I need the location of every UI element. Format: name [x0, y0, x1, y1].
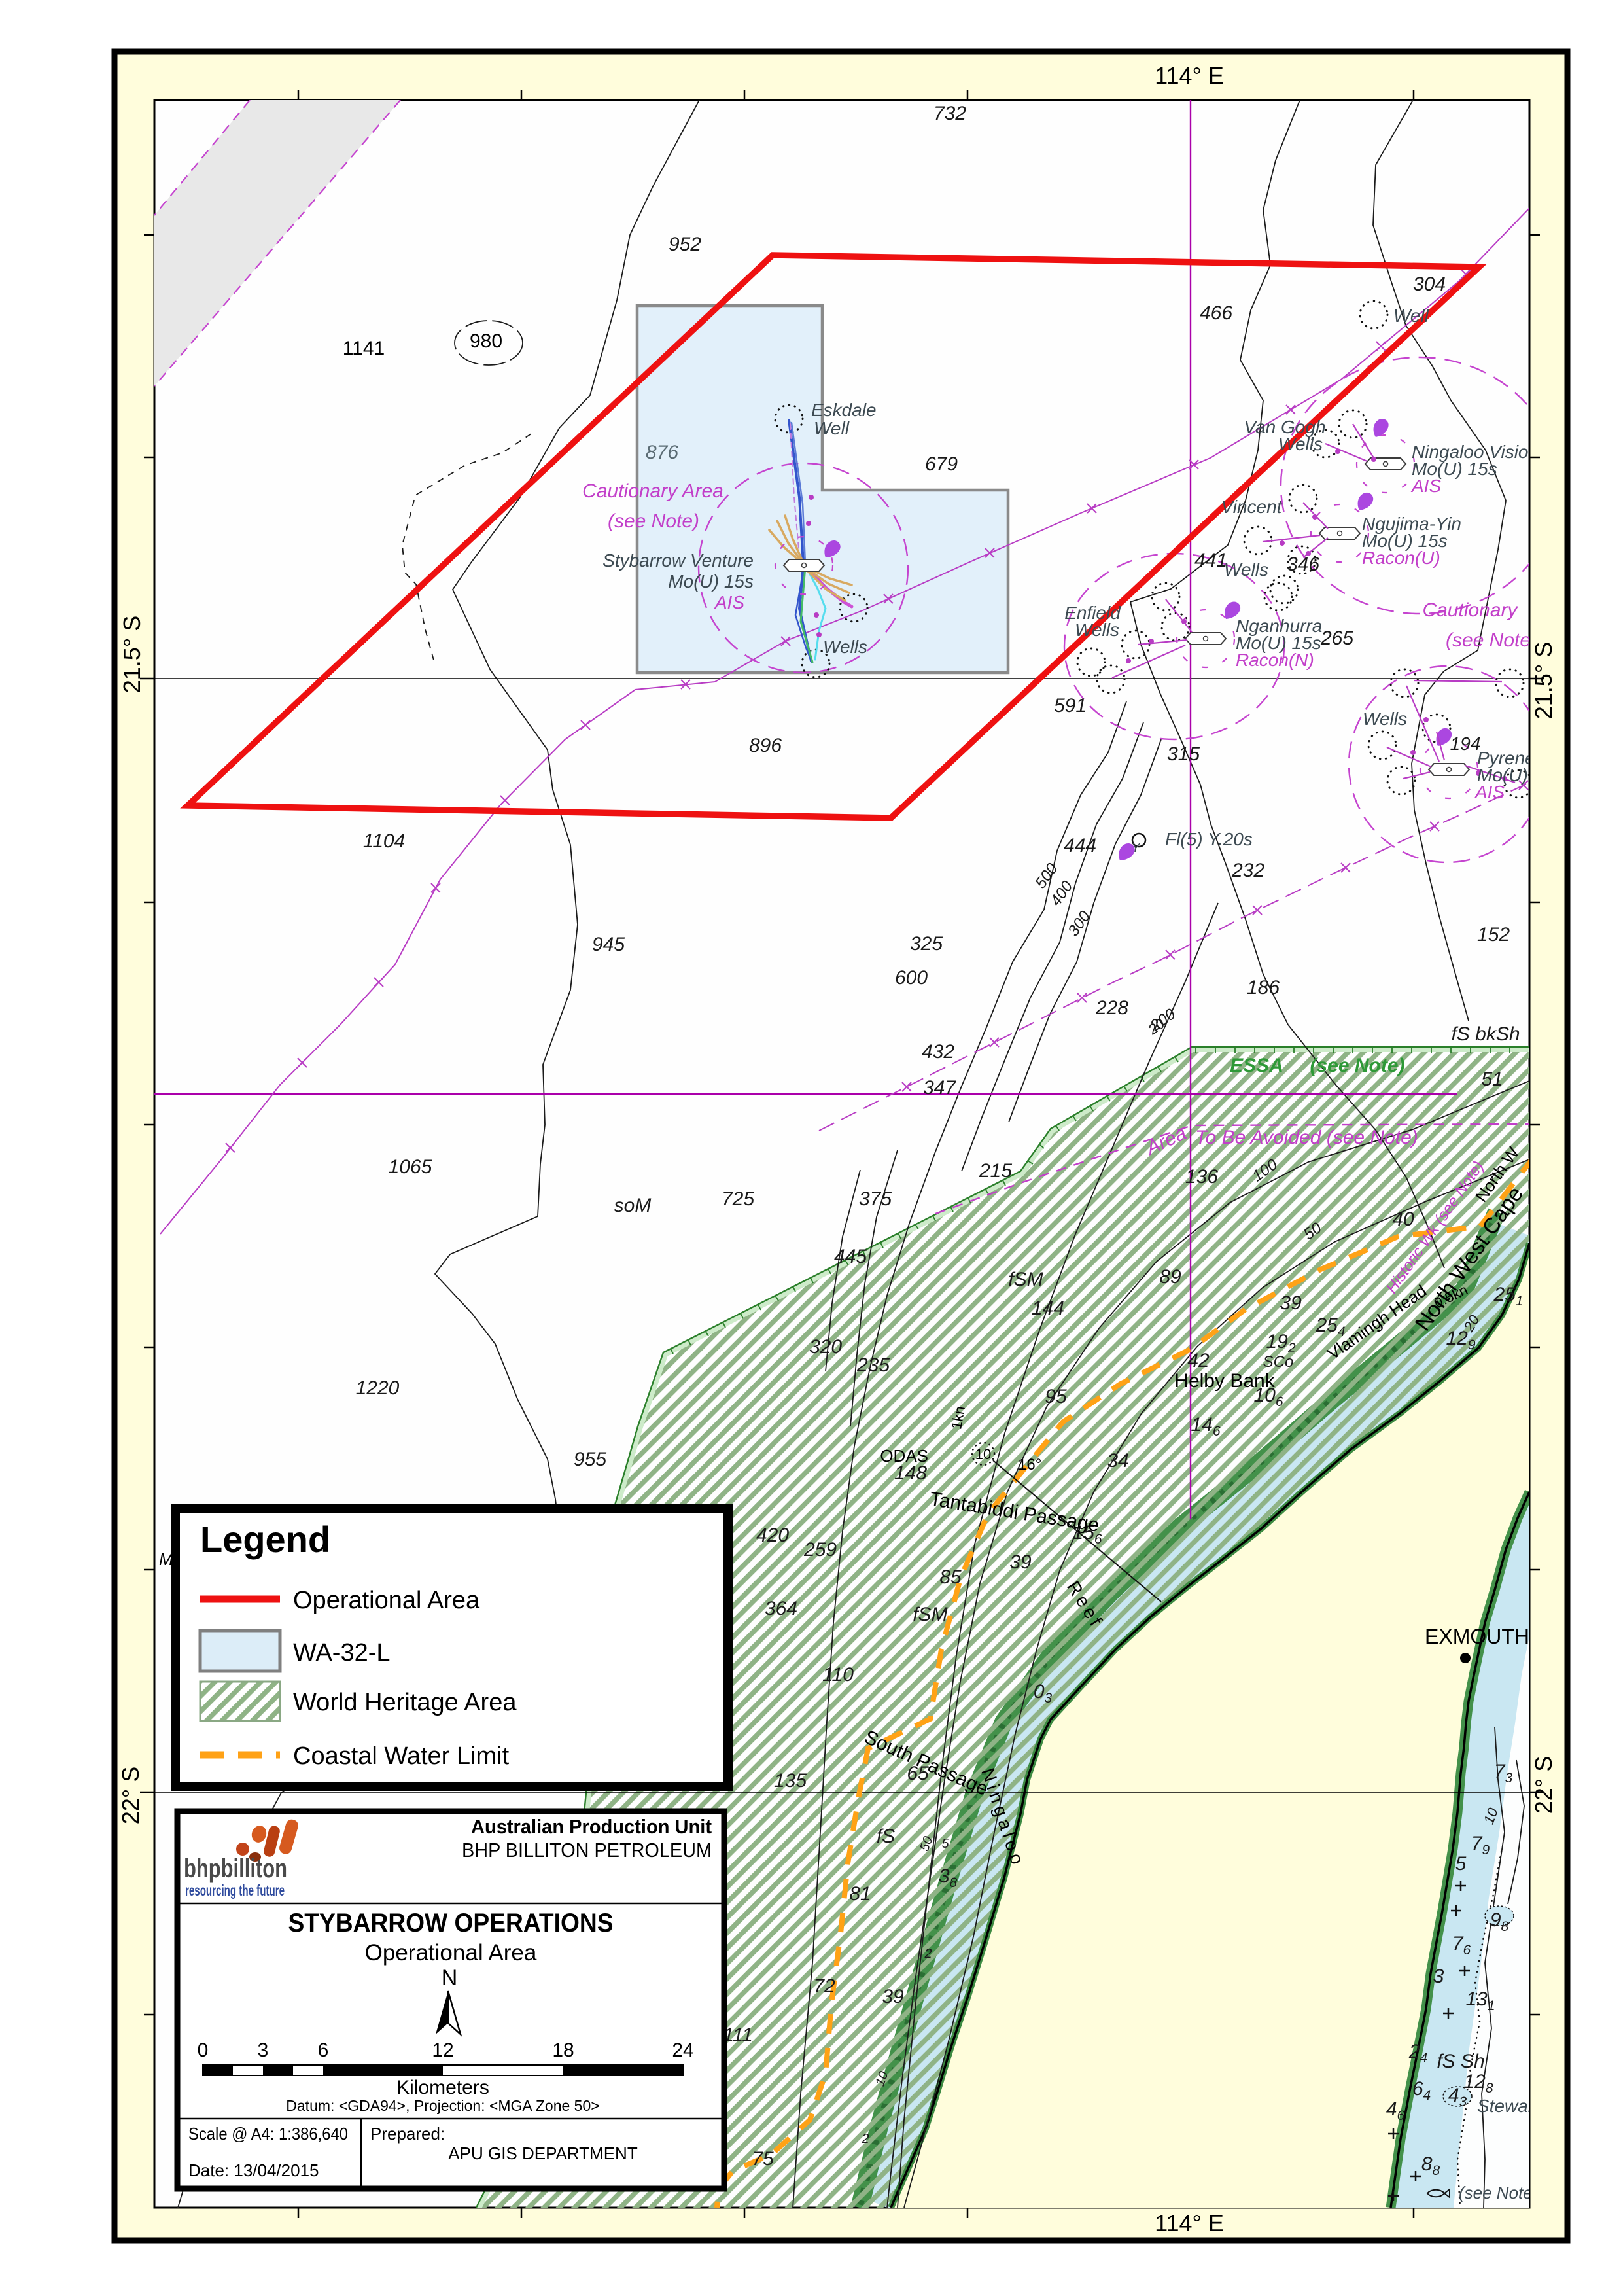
svg-text:441: 441: [1194, 550, 1227, 571]
svg-text:725: 725: [722, 1188, 754, 1210]
svg-text:Scale @ A4: 1:386,640: Scale @ A4: 1:386,640: [188, 2124, 348, 2144]
svg-text:Vincent: Vincent: [1221, 497, 1283, 517]
svg-text:Wells: Wells: [1075, 620, 1119, 640]
svg-text:21.5° S: 21.5° S: [118, 616, 145, 693]
svg-text:259: 259: [803, 1539, 837, 1561]
svg-text:Legend: Legend: [200, 1519, 330, 1560]
svg-text:34: 34: [1107, 1450, 1128, 1472]
svg-text:Operational Area: Operational Area: [293, 1587, 480, 1614]
svg-text:315: 315: [1167, 743, 1200, 765]
svg-text:Y: Y: [1132, 841, 1141, 855]
svg-text:Date: 13/04/2015: Date: 13/04/2015: [188, 2161, 319, 2180]
svg-text:5: 5: [941, 1837, 949, 1851]
svg-text:95: 95: [1045, 1386, 1067, 1407]
svg-text:STYBARROW OPERATIONS: STYBARROW OPERATIONS: [288, 1909, 614, 1937]
svg-text:Coastal Water Limit: Coastal Water Limit: [293, 1742, 510, 1770]
svg-text:232: 232: [1231, 860, 1264, 881]
svg-text:1065: 1065: [389, 1156, 432, 1178]
svg-text:Cautionary: Cautionary: [1422, 599, 1518, 621]
svg-text:364: 364: [765, 1598, 797, 1619]
svg-text:22° S: 22° S: [1530, 1756, 1557, 1814]
svg-text:AIS: AIS: [1474, 782, 1505, 802]
svg-text:81: 81: [849, 1883, 871, 1905]
svg-text:Mo(U) 15s: Mo(U) 15s: [668, 571, 754, 592]
svg-text:Well: Well: [814, 418, 850, 438]
svg-text:466: 466: [1200, 302, 1232, 324]
svg-text:N: N: [442, 1966, 458, 1990]
svg-text:24: 24: [672, 2040, 693, 2061]
svg-text:110: 110: [822, 1664, 854, 1686]
svg-text:325: 325: [910, 933, 943, 955]
svg-text:soM: soM: [614, 1195, 652, 1216]
svg-text:432: 432: [922, 1041, 954, 1063]
svg-text:To Be Avoided (see Note): To Be Avoided (see Note): [1195, 1127, 1418, 1148]
svg-text:955: 955: [574, 1449, 606, 1470]
svg-text:fS: fS: [877, 1826, 895, 1847]
svg-text:APU GIS DEPARTMENT: APU GIS DEPARTMENT: [448, 2144, 638, 2163]
svg-text:fS bkSh: fS bkSh: [1451, 1023, 1520, 1045]
svg-text:Operational Area: Operational Area: [365, 1940, 537, 1966]
svg-text:186: 186: [1247, 977, 1280, 998]
svg-text:Cautionary Area: Cautionary Area: [582, 480, 723, 502]
svg-text:Fl(5) Y.20s: Fl(5) Y.20s: [1165, 829, 1253, 849]
svg-text:Stybarrow Venture: Stybarrow Venture: [602, 550, 754, 571]
svg-text:SCo: SCo: [1263, 1353, 1294, 1371]
svg-text:Wells: Wells: [1363, 709, 1407, 729]
svg-text:152: 152: [1477, 924, 1510, 945]
svg-text:75: 75: [752, 2148, 774, 2170]
svg-text:228: 228: [1095, 997, 1128, 1019]
svg-text:BHP BILLITON PETROLEUM: BHP BILLITON PETROLEUM: [462, 1839, 712, 1862]
svg-text:Prepared:: Prepared:: [370, 2124, 445, 2144]
svg-text:6: 6: [318, 2040, 329, 2061]
svg-text:39: 39: [1280, 1292, 1302, 1314]
svg-text:72: 72: [813, 1975, 835, 1997]
svg-text:39: 39: [1009, 1551, 1032, 1573]
svg-text:5: 5: [1455, 1853, 1467, 1875]
svg-text:445: 445: [834, 1246, 867, 1267]
svg-text:444: 444: [1064, 835, 1096, 857]
svg-text:1104: 1104: [363, 830, 406, 852]
svg-text:420: 420: [756, 1525, 789, 1546]
svg-text:135: 135: [774, 1770, 807, 1792]
svg-text:304: 304: [1413, 274, 1446, 295]
svg-text:945: 945: [592, 934, 625, 955]
svg-text:21.5° S: 21.5° S: [1530, 642, 1557, 719]
svg-text:39: 39: [882, 1986, 904, 2007]
svg-text:(see Note): (see Note): [1459, 2183, 1538, 2202]
svg-text:600: 600: [895, 967, 928, 989]
svg-text:896: 896: [749, 735, 782, 756]
svg-text:AIS: AIS: [714, 592, 744, 612]
svg-text:144: 144: [1032, 1298, 1064, 1319]
svg-text:Wells: Wells: [1278, 434, 1323, 454]
svg-text:40: 40: [1392, 1209, 1414, 1230]
svg-text:Well: Well: [1393, 306, 1429, 326]
svg-text:114° E: 114° E: [1155, 62, 1224, 89]
svg-text:346: 346: [1287, 554, 1319, 575]
svg-text:42: 42: [1187, 1350, 1210, 1371]
svg-text:10: 10: [975, 1446, 991, 1462]
svg-text:EXMOUTH: EXMOUTH: [1425, 1625, 1529, 1648]
svg-text:fS Sh: fS Sh: [1437, 2051, 1484, 2072]
svg-text:114° E: 114° E: [1155, 2210, 1224, 2236]
svg-text:876: 876: [646, 442, 678, 463]
svg-text:ESSA: ESSA: [1230, 1055, 1283, 1076]
svg-text:Wells: Wells: [823, 637, 867, 657]
svg-text:Datum: <GDA94>, Projection: <M: Datum: <GDA94>, Projection: <MGA Zone 50…: [286, 2097, 599, 2114]
svg-text:fSM: fSM: [913, 1604, 947, 1625]
svg-text:591: 591: [1054, 695, 1087, 716]
svg-text:AIS: AIS: [1410, 476, 1441, 496]
svg-text:ODAS: ODAS: [880, 1446, 928, 1466]
svg-text:51: 51: [1481, 1069, 1503, 1090]
svg-text:3: 3: [258, 2040, 269, 2061]
svg-text:111: 111: [723, 2024, 753, 2046]
svg-text:fSM: fSM: [1008, 1269, 1043, 1290]
svg-text:Racon(U): Racon(U): [1362, 548, 1440, 568]
svg-text:89: 89: [1159, 1266, 1181, 1288]
svg-text:320: 320: [809, 1336, 842, 1358]
svg-text:22° S: 22° S: [117, 1767, 144, 1824]
svg-text:(see Note): (see Note): [1446, 629, 1537, 651]
svg-text:Australian Production Unit: Australian Production Unit: [471, 1815, 712, 1838]
svg-text:215: 215: [979, 1160, 1012, 1182]
svg-text:WA-32-L: WA-32-L: [293, 1639, 391, 1667]
svg-text:347: 347: [923, 1077, 956, 1099]
svg-text:Wells: Wells: [1224, 559, 1268, 580]
svg-text:136: 136: [1185, 1166, 1218, 1188]
svg-text:Eskdale: Eskdale: [811, 400, 877, 420]
svg-text:980: 980: [470, 330, 502, 352]
svg-text:resourcing the future: resourcing the future: [185, 1882, 285, 1899]
svg-text:0: 0: [198, 2040, 209, 2061]
svg-text:194: 194: [1450, 733, 1481, 754]
svg-text:12: 12: [432, 2040, 453, 2061]
svg-text:85: 85: [939, 1566, 962, 1588]
svg-text:(see Note): (see Note): [1310, 1055, 1404, 1076]
svg-text:235: 235: [856, 1354, 890, 1376]
svg-text:Helby Bank: Helby Bank: [1174, 1370, 1275, 1392]
svg-text:bhpbilliton: bhpbilliton: [184, 1854, 287, 1883]
svg-text:Kilometers: Kilometers: [396, 2077, 489, 2098]
svg-text:375: 375: [859, 1188, 892, 1210]
svg-text:World Heritage Area: World Heritage Area: [293, 1689, 517, 1716]
svg-text:732: 732: [933, 103, 966, 124]
svg-text:2: 2: [861, 2132, 869, 2146]
svg-text:3: 3: [1433, 1966, 1444, 1987]
svg-text:1141: 1141: [343, 338, 385, 359]
svg-text:952: 952: [669, 234, 701, 255]
svg-text:679: 679: [925, 453, 958, 475]
svg-text:1220: 1220: [356, 1377, 400, 1399]
svg-text:Racon(N): Racon(N): [1236, 650, 1314, 670]
svg-text:16°: 16°: [1018, 1456, 1041, 1474]
svg-text:(see Note): (see Note): [608, 510, 699, 532]
svg-text:265: 265: [1320, 627, 1353, 649]
svg-text:2: 2: [924, 1947, 932, 1961]
svg-text:18: 18: [552, 2040, 574, 2061]
